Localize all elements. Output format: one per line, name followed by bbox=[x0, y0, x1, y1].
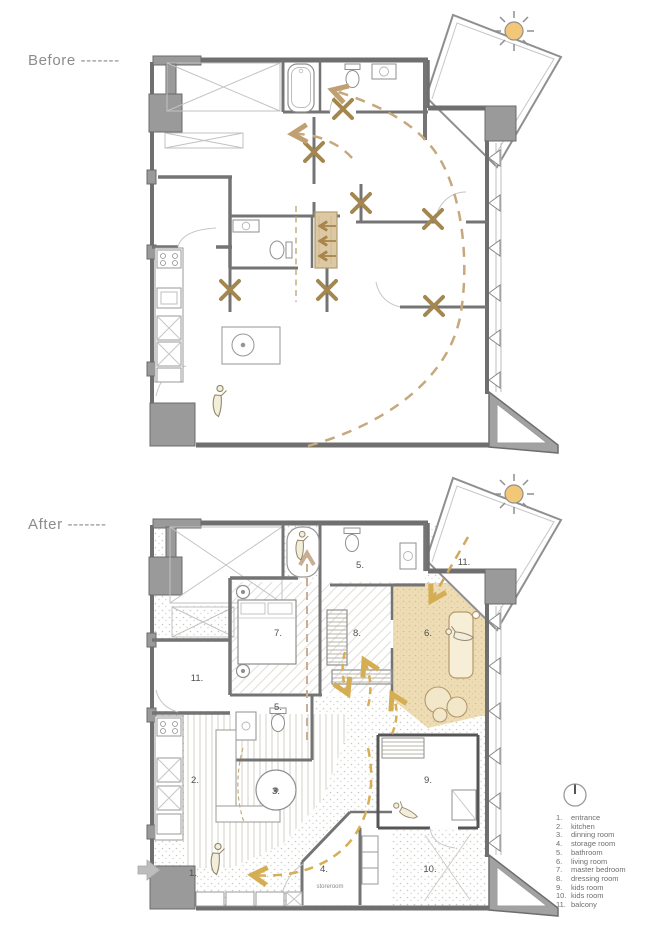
room-number-dining: 3. bbox=[272, 786, 280, 797]
before-plan bbox=[147, 11, 561, 453]
room-number-dressing: 8. bbox=[353, 628, 361, 639]
legend-item: 11.balcony bbox=[556, 901, 660, 910]
room-number-bathroom-mid: 5. bbox=[274, 702, 282, 713]
legend-label: balcony bbox=[571, 901, 660, 910]
storeroom-label: storeroom bbox=[316, 884, 343, 890]
kitchen-counter bbox=[155, 248, 183, 382]
room-number-balcony-left: 11. bbox=[191, 673, 204, 684]
wardrobe-icon bbox=[315, 212, 337, 268]
room-number-entrance: 1. bbox=[189, 868, 197, 879]
north-arrow-icon bbox=[560, 780, 660, 808]
legend-num: 11. bbox=[556, 901, 571, 910]
toilet-icon bbox=[344, 528, 360, 552]
sink-icon bbox=[400, 543, 416, 569]
toilet-icon bbox=[233, 220, 292, 259]
room-number-kids-a: 9. bbox=[424, 775, 432, 786]
table-icon bbox=[222, 327, 280, 364]
x-mark-icon bbox=[424, 210, 442, 228]
room-number-storage: 4. bbox=[320, 864, 328, 875]
kids-desk-icon bbox=[362, 836, 378, 884]
demolition-x-marks bbox=[221, 100, 443, 315]
sink-icon bbox=[372, 64, 396, 79]
toilet-icon bbox=[345, 64, 360, 88]
room-number-bathroom-top: 5. bbox=[356, 560, 364, 571]
bathtub-icon bbox=[288, 64, 314, 112]
room-number-kitchen: 2. bbox=[191, 775, 199, 786]
legend-items: 1.entrance 2.kitchen 3.dinning room 4.st… bbox=[556, 814, 660, 910]
room-number-living: 6. bbox=[424, 628, 432, 639]
room-number-balcony-top: 11. bbox=[458, 557, 471, 568]
legend: 1.entrance 2.kitchen 3.dinning room 4.st… bbox=[556, 780, 660, 910]
person-walking-icon bbox=[213, 385, 226, 416]
room-number-master: 7. bbox=[274, 628, 282, 639]
room-number-kids-b: 10. bbox=[423, 864, 436, 875]
x-mark-icon bbox=[334, 100, 352, 118]
shoe-cabinet bbox=[196, 892, 302, 906]
after-plan: 1. 2. 3. 4. 5. 5. 6. 7. 8. 9. 10. 11. 11… bbox=[138, 474, 561, 934]
